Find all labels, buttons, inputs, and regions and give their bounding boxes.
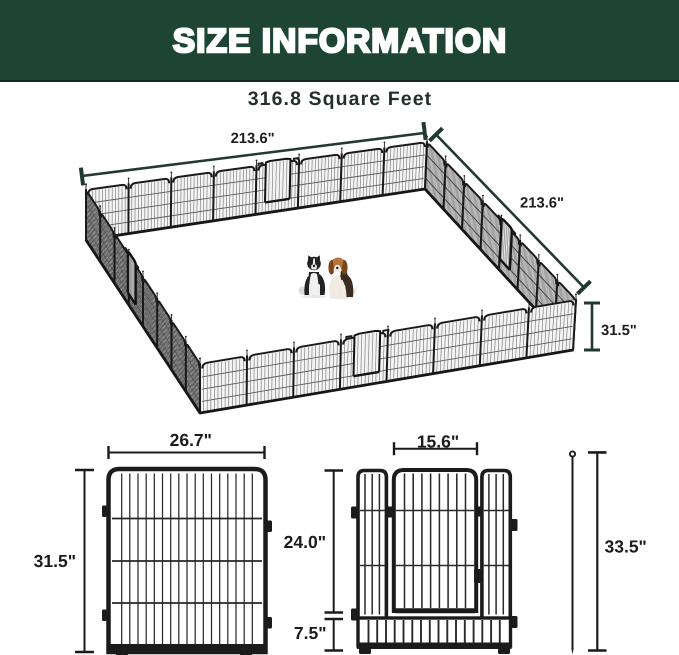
svg-text:33.5": 33.5" xyxy=(605,537,647,557)
svg-text:15.6": 15.6" xyxy=(417,432,459,452)
svg-text:SIZE INFORMATION: SIZE INFORMATION xyxy=(173,23,507,60)
svg-text:213.6": 213.6" xyxy=(231,131,275,147)
svg-text:26.7": 26.7" xyxy=(170,430,212,450)
svg-text:24.0": 24.0" xyxy=(284,532,326,552)
svg-text:7.5": 7.5" xyxy=(294,623,327,643)
svg-text:31.5": 31.5" xyxy=(601,323,637,339)
svg-text:316.8 Square Feet: 316.8 Square Feet xyxy=(248,88,433,110)
svg-text:213.6": 213.6" xyxy=(520,196,564,212)
svg-text:31.5": 31.5" xyxy=(34,551,76,571)
